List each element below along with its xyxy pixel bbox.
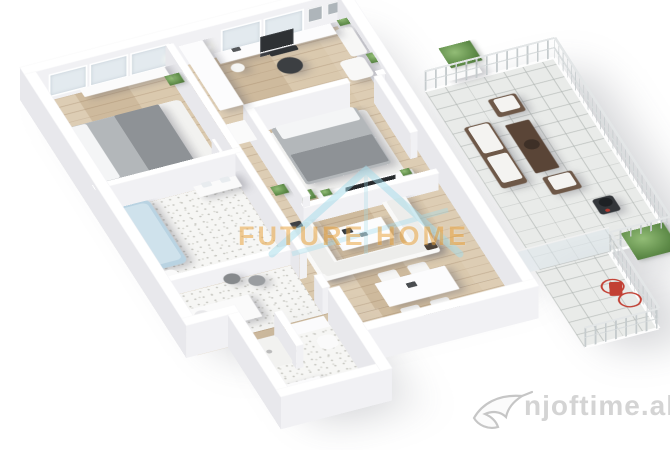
bathroom2-divider-face	[296, 344, 303, 369]
future-home-watermark: FUTURE HOME	[238, 221, 469, 252]
njoftime-watermark-text: njoftime.al	[524, 390, 670, 422]
wall-bedroom2-east-face	[410, 131, 417, 159]
bathroom2-wall-east-face	[381, 368, 392, 403]
bicycle-frame	[609, 282, 623, 296]
njoftime-watermark: njoftime.al	[468, 380, 668, 444]
floor-plan-render: FUTURE HOME njoftime.al	[0, 0, 670, 450]
